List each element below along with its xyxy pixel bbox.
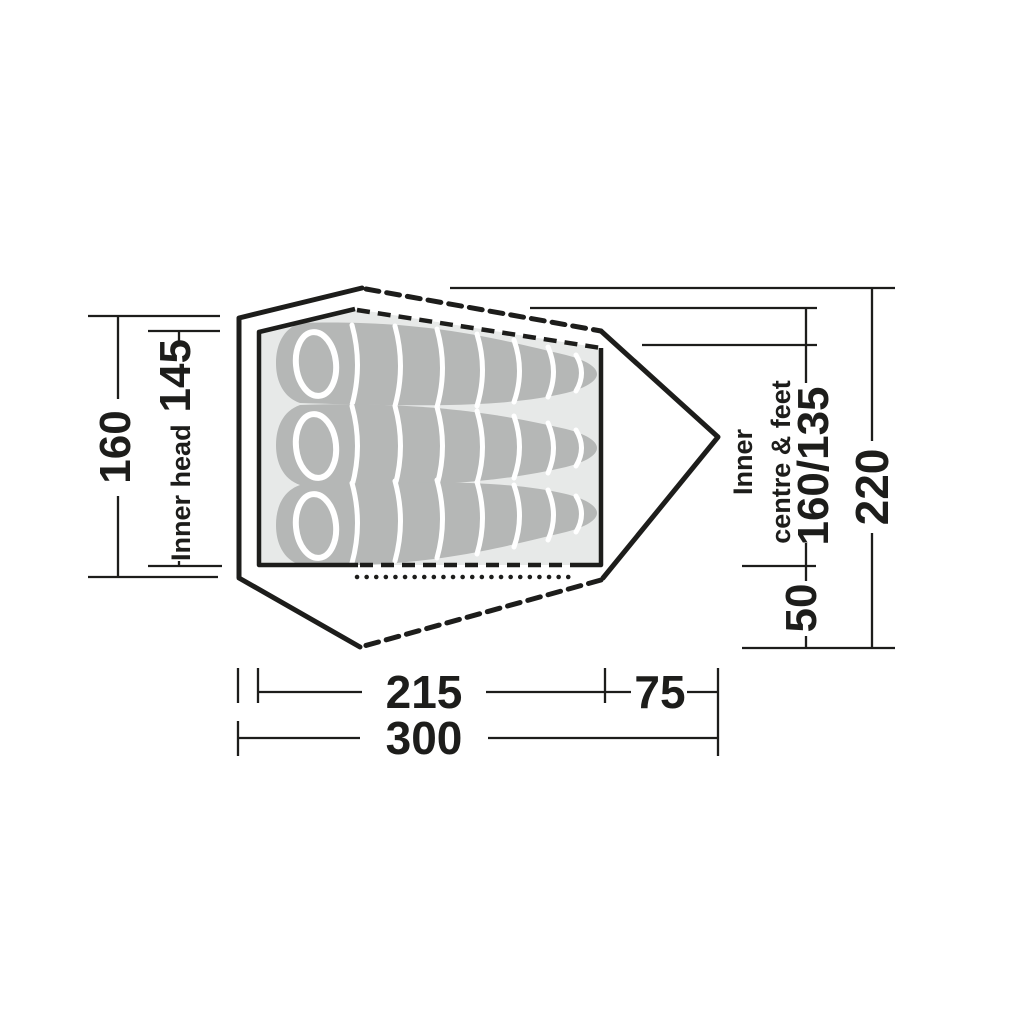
tent-floorplan-diagram: 160 Inner head145 Inner centre & feet 16… bbox=[0, 0, 1024, 1024]
dim-bottom-inner-value: 215 bbox=[386, 666, 463, 718]
sleeping-bags bbox=[276, 323, 597, 566]
dim-right-overall-value: 220 bbox=[846, 449, 898, 526]
dim-bottom-front-value: 75 bbox=[634, 666, 685, 718]
inner-head-label: Inner head bbox=[166, 424, 196, 561]
dim-right-inner-label-line1: Inner bbox=[728, 429, 758, 496]
dim-right-front-value: 50 bbox=[777, 584, 826, 633]
dim-right-inner-value: 160/135 bbox=[789, 386, 838, 545]
inner-head-value: 145 bbox=[151, 339, 200, 412]
dim-bottom-overall-value: 300 bbox=[386, 712, 463, 764]
tent-floorplan-page: 160 Inner head145 Inner centre & feet 16… bbox=[0, 0, 1024, 1024]
dim-left-outer-value: 160 bbox=[91, 410, 140, 483]
